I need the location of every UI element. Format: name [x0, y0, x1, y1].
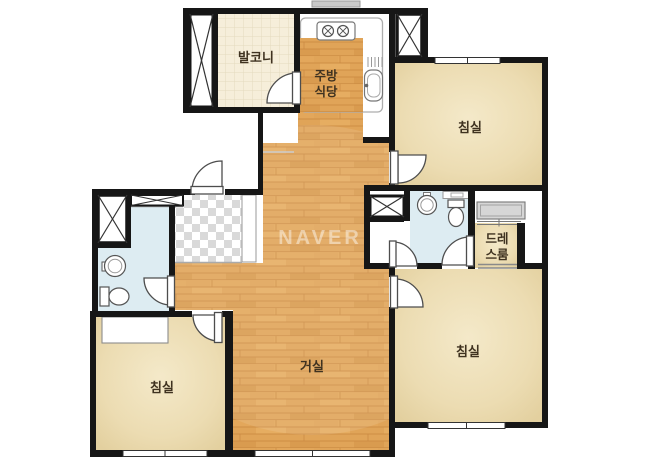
dress-room-label-line2: 스룸: [485, 247, 509, 262]
kitchen-sink-icon: [365, 70, 383, 101]
naver-watermark: NAVER: [278, 227, 362, 249]
duct-shaft-icon: [370, 196, 404, 217]
bedroom-closet: [102, 317, 168, 343]
dress-side-nook: [525, 223, 542, 268]
entrance-door-leaf: [191, 187, 223, 195]
shoe-cabinet: [242, 195, 256, 262]
anteroom-door-leaf: [390, 241, 397, 267]
bedroom-left-door-leaf: [215, 313, 223, 343]
toilet-icon: [448, 200, 464, 227]
duct-shaft-icon: [397, 14, 422, 57]
bedroom-top-right-door-leaf: [391, 151, 399, 184]
balcony-door-leaf: [293, 72, 301, 104]
kitchen-fixtures: [298, 1, 383, 112]
duct-shaft-icon: [190, 14, 213, 107]
window-bedroom-top-right: [435, 58, 500, 64]
floor-plan: 발코니 주방 식당 침실 드레 스룸 거실 침실 침실 NAVER: [0, 0, 646, 473]
bathroom-right-door-leaf: [467, 236, 474, 266]
window-living-room: [255, 451, 370, 457]
bathroom-left-door-leaf: [168, 276, 175, 307]
entrance-checker-floor: [175, 195, 242, 262]
bath-shelf: [443, 192, 469, 199]
bedroom-left-label: 침실: [150, 380, 174, 395]
window-bedroom-bottom-right: [428, 423, 505, 429]
living-room-label: 거실: [300, 359, 324, 374]
window-bedroom-left: [123, 451, 207, 457]
toilet-icon: [100, 287, 129, 306]
bedroom-bottom-right-label: 침실: [456, 344, 480, 359]
kitchen-label-line2: 식당: [314, 84, 338, 99]
bedroom-bottom-right-door-leaf: [391, 276, 398, 308]
balcony-label: 발코니: [238, 50, 274, 65]
kitchen-label-line1: 주방: [314, 68, 338, 83]
duct-box-icon: [131, 195, 183, 206]
bedroom-top-right-label: 침실: [458, 120, 482, 135]
duct-shaft-icon: [98, 195, 127, 243]
stove-icon: [317, 22, 355, 40]
dress-room-label-line1: 드레: [485, 231, 508, 246]
range-hood-icon: [312, 1, 360, 7]
floor-plan-canvas: 발코니 주방 식당 침실 드레 스룸 거실 침실 침실 NAVER: [0, 0, 646, 473]
